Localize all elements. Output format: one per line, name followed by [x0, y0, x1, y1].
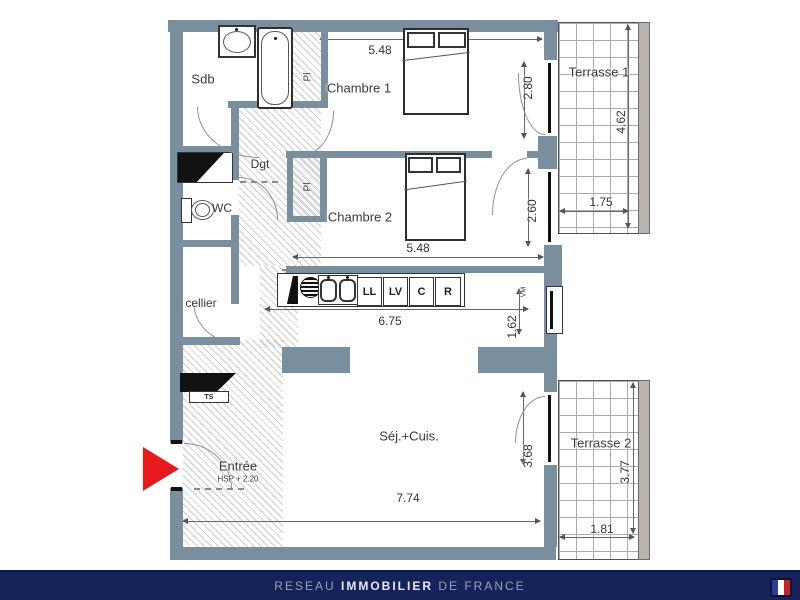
hatch-zone-entree — [183, 340, 283, 547]
appliance-washer: LL — [357, 277, 382, 306]
dim-line-terrasse1-depth — [628, 25, 629, 228]
dim-label-kitchen-width: 6.75 — [378, 314, 401, 328]
appliance-cooker-label: C — [418, 286, 426, 298]
flag-red-stripe — [784, 580, 790, 595]
sink-bowl-1-icon — [320, 279, 337, 302]
dim-line-kitchen-width — [265, 309, 528, 310]
bathtub-basin-icon — [261, 31, 289, 105]
window-chambre1-glazing — [548, 63, 551, 133]
wall-bedroom-divider-b — [527, 151, 544, 158]
sink-tap-1-icon — [327, 276, 330, 279]
vent-label: VM — [521, 287, 528, 298]
sink-bowl-2-icon — [339, 279, 356, 302]
terrace-2-outer-band — [638, 380, 650, 560]
dim-label-chambre1-width: 5.48 — [368, 43, 391, 57]
wall-dgt-vert-b — [231, 215, 239, 248]
dim-label-sejour-window: 3.68 — [521, 444, 535, 467]
dim-label-chambre2-window: 2.60 — [525, 199, 539, 222]
room-label-chambre2: Chambre 2 — [328, 210, 392, 225]
room-label-closet2: Pl — [303, 183, 314, 192]
threshold-wc — [240, 181, 278, 183]
wall-closet2-right — [320, 151, 327, 219]
room-label-cellier: cellier — [185, 296, 216, 310]
wall-stub-right-4 — [544, 465, 557, 547]
dim-label-chambre2-width: 5.48 — [406, 241, 429, 255]
dim-label-terrasse1-depth: 4.62 — [614, 110, 628, 133]
room-label-sdb: Sdb — [191, 72, 214, 87]
sink-tap-2-icon — [346, 276, 349, 279]
room-label-entree: Entrée — [219, 459, 257, 474]
threshold-kitchen — [282, 269, 324, 271]
dim-line-sejour-width — [183, 521, 540, 522]
wall-kitchen-top — [286, 266, 544, 273]
brand-main: IMMOBILIER — [341, 579, 433, 593]
electrical-panel-label: TS — [205, 394, 214, 401]
room-label-chambre1: Chambre 1 — [327, 81, 391, 96]
brand-text: RESEAU IMMOBILIER DE FRANCE — [0, 572, 800, 600]
dim-label-chambre1-window: 2.80 — [521, 76, 535, 99]
terrace-1-outer-band — [638, 22, 650, 234]
dim-line-terrasse2-width — [560, 537, 634, 538]
room-label-terrasse2: Terrasse 2 — [571, 436, 632, 451]
dim-line-terrasse1-width — [560, 211, 628, 212]
entree-door-jamb-top — [171, 440, 182, 444]
wall-closet2-left — [287, 151, 293, 219]
wall-stub-right-2 — [544, 245, 562, 286]
dim-label-kitchen-window: 1.62 — [505, 315, 519, 338]
bed-chambre1-pillow-1 — [407, 32, 435, 48]
window-kitchen-glazing — [550, 291, 553, 329]
washbasin-tap-icon — [235, 28, 238, 31]
room-label-terrasse1: Terrasse 1 — [569, 65, 630, 80]
window-chambre2-glazing — [548, 172, 551, 242]
brand-post: DE FRANCE — [438, 579, 525, 593]
brand-pre: RESEAU — [274, 579, 335, 593]
wall-cellier-vert — [231, 247, 239, 304]
hatch-zone-closet1 — [292, 30, 321, 101]
bed-chambre1-pillow-2 — [438, 32, 466, 48]
floorplan-canvas: TS LL LV C R Sdb Chambre 1 Dgt WC Chambr… — [0, 0, 800, 600]
dim-label-terrasse1-width: 1.75 — [589, 195, 612, 209]
door-arc-chambre2 — [492, 158, 527, 215]
wall-sejour-stub-right — [478, 347, 544, 373]
dim-line-terrasse2-depth — [633, 383, 634, 533]
dim-label-terrasse2-depth: 3.77 — [618, 460, 632, 483]
appliance-fridge: R — [435, 277, 461, 306]
appliance-fridge-label: R — [444, 286, 452, 298]
appliance-dishwasher-label: LV — [389, 286, 402, 298]
room-label-sejour: Séj.+Cuis. — [379, 429, 439, 444]
appliance-dishwasher: LV — [383, 277, 408, 306]
appliance-washer-label: LL — [363, 286, 376, 298]
entrance-arrow-icon — [143, 447, 179, 491]
dim-label-sejour-width: 7.74 — [396, 491, 419, 505]
window-kitchen — [546, 286, 563, 334]
dim-line-chambre2-width — [293, 257, 543, 258]
bed-chambre2-pillow-1 — [408, 157, 433, 173]
threshold-entree — [194, 488, 244, 490]
room-label-dgt: Dgt — [251, 157, 270, 171]
washbasin-bowl-icon — [223, 31, 251, 53]
door-arc-sejour-window — [515, 396, 545, 443]
toilet-bowl-inner-icon — [195, 203, 210, 217]
window-sejour-glazing — [548, 395, 551, 462]
wall-closet2-bottom — [287, 216, 327, 222]
dim-label-terrasse2-width: 1.81 — [590, 522, 613, 536]
room-label-entree-note: HSP + 2.20 — [218, 475, 259, 484]
room-label-closet1: Pl — [303, 73, 314, 82]
wall-sejour-stub-left — [282, 347, 350, 373]
room-label-wc: WC — [212, 201, 232, 215]
appliance-cooker: C — [409, 277, 434, 306]
bathtub-drain-icon — [274, 37, 277, 40]
france-flag-icon — [770, 578, 792, 597]
footer-bar: RESEAU IMMOBILIER DE FRANCE — [0, 570, 800, 600]
electrical-panel-box: TS — [189, 391, 229, 403]
wall-bottom — [170, 547, 556, 560]
bed-chambre2-pillow-2 — [436, 157, 461, 173]
wall-stub-right-3 — [544, 334, 557, 392]
